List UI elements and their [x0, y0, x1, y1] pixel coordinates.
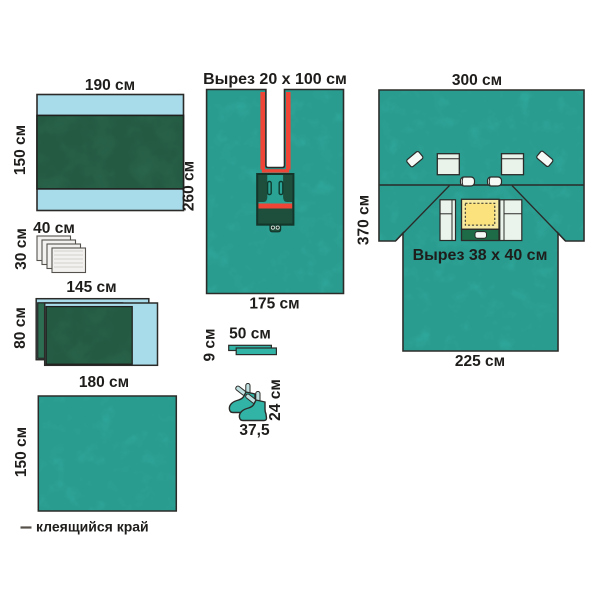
svg-text:300 см: 300 см: [452, 72, 502, 89]
svg-text:клеящийся край: клеящийся край: [36, 519, 149, 535]
svg-text:30 см: 30 см: [13, 228, 30, 270]
svg-text:260 см: 260 см: [181, 161, 198, 211]
svg-text:37,5: 37,5: [239, 422, 270, 439]
svg-text:150 см: 150 см: [13, 427, 30, 477]
svg-text:40 см: 40 см: [33, 220, 75, 237]
svg-text:9 см: 9 см: [202, 328, 219, 361]
svg-text:50 см: 50 см: [229, 326, 271, 343]
svg-text:370 см: 370 см: [356, 195, 373, 245]
svg-text:Вырез 20 x 100 см: Вырез 20 x 100 см: [203, 71, 347, 88]
svg-text:145 см: 145 см: [66, 279, 116, 296]
svg-text:190 см: 190 см: [85, 77, 135, 94]
svg-text:225 см: 225 см: [455, 353, 505, 370]
svg-text:180 см: 180 см: [79, 374, 129, 391]
svg-text:150 см: 150 см: [12, 125, 29, 175]
svg-text:80 см: 80 см: [12, 307, 29, 349]
svg-text:Вырез 38 x 40 см: Вырез 38 x 40 см: [413, 247, 548, 264]
svg-text:175 см: 175 см: [249, 296, 299, 313]
svg-text:24 см: 24 см: [267, 379, 284, 421]
